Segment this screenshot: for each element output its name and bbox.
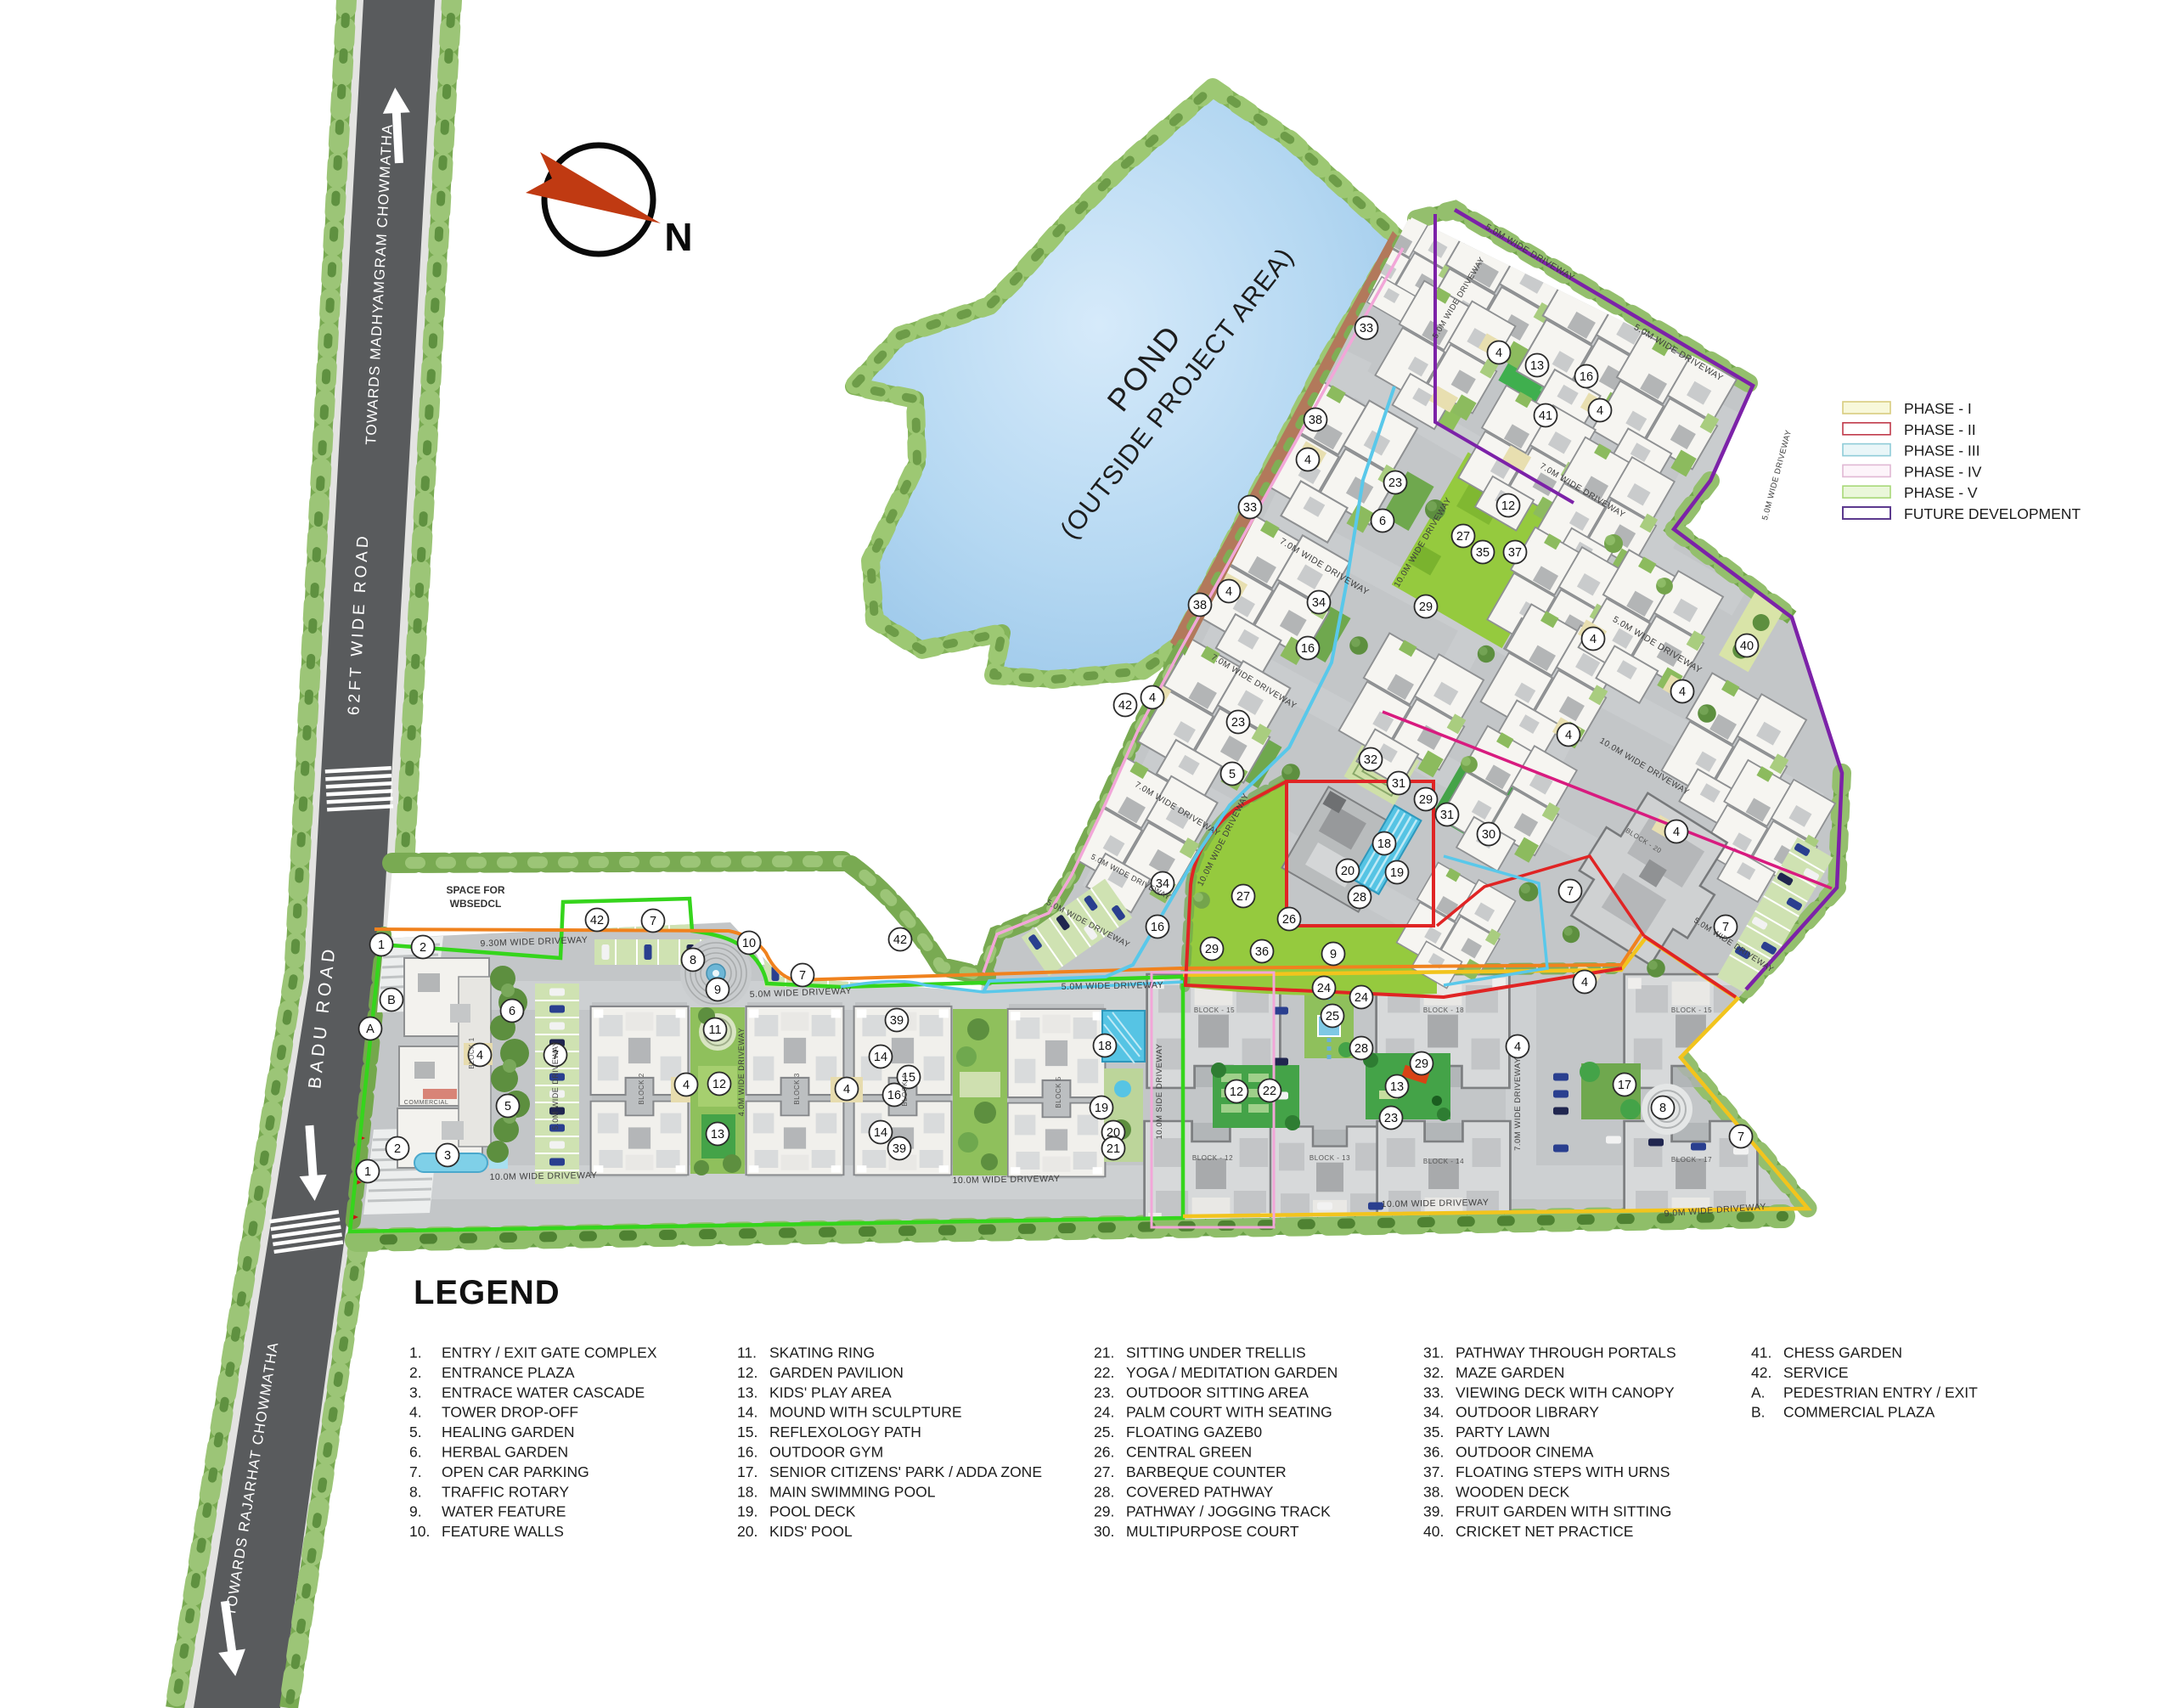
svg-text:31: 31 bbox=[1392, 777, 1405, 791]
svg-text:A: A bbox=[366, 1023, 375, 1036]
svg-text:TRAFFIC ROTARY: TRAFFIC ROTARY bbox=[442, 1483, 569, 1500]
svg-text:4: 4 bbox=[1304, 454, 1311, 467]
svg-text:4: 4 bbox=[1581, 976, 1588, 989]
svg-text:ENTRANCE PLAZA: ENTRANCE PLAZA bbox=[442, 1364, 575, 1381]
svg-text:10.0M SIDE DRIVEWAY: 10.0M SIDE DRIVEWAY bbox=[1155, 1043, 1164, 1139]
svg-text:COVERED PATHWAY: COVERED PATHWAY bbox=[1126, 1483, 1274, 1500]
svg-text:OUTDOOR SITTING AREA: OUTDOOR SITTING AREA bbox=[1126, 1384, 1309, 1401]
svg-text:28.: 28. bbox=[1094, 1483, 1114, 1500]
svg-text:1: 1 bbox=[378, 939, 385, 952]
svg-text:BLOCK 2: BLOCK 2 bbox=[638, 1073, 645, 1104]
svg-text:24: 24 bbox=[1317, 982, 1331, 995]
svg-text:34: 34 bbox=[1312, 596, 1326, 610]
svg-text:19: 19 bbox=[1390, 866, 1404, 880]
svg-text:KIDS' PLAY AREA: KIDS' PLAY AREA bbox=[769, 1384, 892, 1401]
svg-text:KIDS' POOL: KIDS' POOL bbox=[769, 1523, 853, 1540]
svg-text:12: 12 bbox=[1230, 1085, 1243, 1099]
svg-text:10.: 10. bbox=[409, 1523, 430, 1540]
svg-text:41.: 41. bbox=[1751, 1344, 1771, 1361]
svg-text:4: 4 bbox=[1149, 691, 1156, 705]
svg-text:BLOCK - 15: BLOCK - 15 bbox=[1671, 1006, 1712, 1014]
svg-text:18.: 18. bbox=[737, 1483, 758, 1500]
svg-text:35.: 35. bbox=[1423, 1423, 1444, 1440]
svg-text:4: 4 bbox=[1565, 729, 1572, 742]
svg-text:BLOCK 3: BLOCK 3 bbox=[793, 1073, 801, 1104]
svg-text:25.: 25. bbox=[1094, 1423, 1114, 1440]
svg-text:12: 12 bbox=[712, 1078, 726, 1091]
svg-text:4.0M WIDE DRIVEWAY: 4.0M WIDE DRIVEWAY bbox=[737, 1028, 746, 1117]
svg-text:10.0M WIDE DRIVEWAY: 10.0M WIDE DRIVEWAY bbox=[1381, 1198, 1489, 1209]
svg-text:4: 4 bbox=[476, 1049, 483, 1063]
svg-text:CENTRAL GREEN: CENTRAL GREEN bbox=[1126, 1444, 1252, 1461]
svg-text:COMMERCIAL: COMMERCIAL bbox=[404, 1100, 448, 1106]
svg-text:BARBEQUE COUNTER: BARBEQUE COUNTER bbox=[1126, 1463, 1287, 1480]
svg-text:WOODEN DECK: WOODEN DECK bbox=[1456, 1483, 1570, 1500]
svg-text:20: 20 bbox=[1107, 1126, 1120, 1140]
svg-text:BLOCK 5: BLOCK 5 bbox=[1055, 1076, 1062, 1108]
svg-text:33: 33 bbox=[1243, 501, 1257, 515]
svg-text:5.: 5. bbox=[409, 1423, 422, 1440]
svg-text:HERBAL GARDEN: HERBAL GARDEN bbox=[442, 1444, 568, 1461]
svg-text:14: 14 bbox=[874, 1126, 887, 1140]
svg-text:29.: 29. bbox=[1094, 1503, 1114, 1520]
svg-text:2: 2 bbox=[394, 1142, 401, 1156]
svg-text:ENTRACE WATER CASCADE: ENTRACE WATER CASCADE bbox=[442, 1384, 645, 1401]
svg-text:12.: 12. bbox=[737, 1364, 758, 1381]
svg-text:4: 4 bbox=[683, 1079, 690, 1092]
svg-text:17: 17 bbox=[1618, 1079, 1631, 1092]
svg-text:10.0M WIDE DRIVEWAY: 10.0M WIDE DRIVEWAY bbox=[952, 1174, 1060, 1186]
svg-text:21: 21 bbox=[1107, 1142, 1120, 1156]
svg-text:B.: B. bbox=[1751, 1404, 1766, 1421]
svg-text:19.: 19. bbox=[737, 1503, 758, 1520]
svg-text:26.: 26. bbox=[1094, 1444, 1114, 1461]
svg-text:16: 16 bbox=[1151, 921, 1164, 934]
svg-text:2: 2 bbox=[420, 941, 426, 955]
svg-text:16.: 16. bbox=[737, 1444, 758, 1461]
svg-text:9: 9 bbox=[1330, 948, 1337, 961]
svg-text:37: 37 bbox=[1508, 546, 1522, 560]
svg-text:32: 32 bbox=[1364, 753, 1377, 767]
svg-text:18: 18 bbox=[1098, 1040, 1112, 1053]
svg-text:4: 4 bbox=[1590, 633, 1597, 646]
svg-text:38.: 38. bbox=[1423, 1483, 1444, 1500]
svg-text:BLOCK 4: BLOCK 4 bbox=[901, 1074, 909, 1106]
svg-text:BLOCK - 14: BLOCK - 14 bbox=[1423, 1158, 1464, 1165]
svg-text:36.: 36. bbox=[1423, 1444, 1444, 1461]
svg-text:4: 4 bbox=[1673, 826, 1680, 839]
svg-text:33.: 33. bbox=[1423, 1384, 1444, 1401]
svg-text:ENTRY / EXIT GATE COMPLEX: ENTRY / EXIT GATE COMPLEX bbox=[442, 1344, 657, 1361]
svg-text:16: 16 bbox=[887, 1089, 901, 1102]
svg-text:9.: 9. bbox=[409, 1503, 422, 1520]
svg-text:38: 38 bbox=[1193, 599, 1207, 612]
svg-text:27: 27 bbox=[1456, 530, 1470, 544]
svg-text:CHESS GARDEN: CHESS GARDEN bbox=[1783, 1344, 1902, 1361]
svg-text:OPEN CAR PARKING: OPEN CAR PARKING bbox=[442, 1463, 589, 1480]
svg-text:SITTING UNDER TRELLIS: SITTING UNDER TRELLIS bbox=[1126, 1344, 1306, 1361]
svg-text:FEATURE WALLS: FEATURE WALLS bbox=[442, 1523, 564, 1540]
svg-text:4: 4 bbox=[1679, 685, 1686, 699]
svg-text:34.: 34. bbox=[1423, 1404, 1444, 1421]
svg-text:9: 9 bbox=[714, 984, 721, 997]
svg-text:PHASE - V: PHASE - V bbox=[1904, 484, 1978, 501]
svg-text:FLOATING GAZEB0: FLOATING GAZEB0 bbox=[1126, 1423, 1262, 1440]
svg-text:CRICKET NET PRACTICE: CRICKET NET PRACTICE bbox=[1456, 1523, 1633, 1540]
svg-text:39: 39 bbox=[893, 1142, 906, 1156]
svg-text:28: 28 bbox=[1353, 891, 1366, 905]
svg-text:7: 7 bbox=[799, 969, 806, 983]
svg-text:7: 7 bbox=[1738, 1130, 1744, 1144]
svg-text:4: 4 bbox=[1225, 585, 1232, 599]
svg-text:A.: A. bbox=[1751, 1384, 1766, 1401]
svg-text:2.: 2. bbox=[409, 1364, 422, 1381]
svg-text:32.: 32. bbox=[1423, 1364, 1444, 1381]
svg-text:23: 23 bbox=[1231, 716, 1245, 730]
svg-text:7: 7 bbox=[1567, 885, 1574, 899]
svg-text:3: 3 bbox=[444, 1149, 451, 1163]
svg-text:WBSEDCL: WBSEDCL bbox=[450, 898, 502, 910]
svg-text:4: 4 bbox=[1514, 1040, 1521, 1054]
svg-text:11: 11 bbox=[708, 1023, 721, 1037]
svg-text:36: 36 bbox=[1255, 945, 1269, 959]
svg-text:20.: 20. bbox=[737, 1523, 758, 1540]
svg-text:1: 1 bbox=[364, 1165, 371, 1179]
svg-text:39.: 39. bbox=[1423, 1503, 1444, 1520]
svg-text:REFLEXOLOGY PATH: REFLEXOLOGY PATH bbox=[769, 1423, 921, 1440]
svg-text:42: 42 bbox=[893, 933, 907, 947]
svg-text:PHASE - IV: PHASE - IV bbox=[1904, 463, 1982, 480]
svg-text:30: 30 bbox=[1482, 828, 1495, 842]
svg-text:39: 39 bbox=[890, 1014, 904, 1028]
svg-text:16: 16 bbox=[1580, 370, 1593, 384]
svg-text:BLOCK - 12: BLOCK - 12 bbox=[1192, 1154, 1233, 1162]
svg-text:PATHWAY THROUGH PORTALS: PATHWAY THROUGH PORTALS bbox=[1456, 1344, 1676, 1361]
svg-text:20: 20 bbox=[1341, 865, 1355, 878]
svg-text:17.: 17. bbox=[737, 1463, 758, 1480]
svg-text:MULTIPURPOSE COURT: MULTIPURPOSE COURT bbox=[1126, 1523, 1299, 1540]
svg-text:14.: 14. bbox=[737, 1404, 758, 1421]
svg-text:27.: 27. bbox=[1094, 1463, 1114, 1480]
svg-text:42: 42 bbox=[590, 914, 604, 927]
svg-text:23.: 23. bbox=[1094, 1384, 1114, 1401]
svg-text:SERVICE: SERVICE bbox=[1783, 1364, 1849, 1381]
svg-text:14: 14 bbox=[874, 1051, 887, 1064]
svg-text:22.: 22. bbox=[1094, 1364, 1114, 1381]
svg-text:8.: 8. bbox=[409, 1483, 422, 1500]
svg-text:BLOCK - 17: BLOCK - 17 bbox=[1671, 1156, 1712, 1164]
svg-text:OUTDOOR CINEMA: OUTDOOR CINEMA bbox=[1456, 1444, 1594, 1461]
svg-text:7.: 7. bbox=[409, 1463, 422, 1480]
svg-text:SKATING RING: SKATING RING bbox=[769, 1344, 875, 1361]
svg-text:7.0M WIDE DRIVEWAY: 7.0M WIDE DRIVEWAY bbox=[1513, 1057, 1523, 1151]
svg-text:B: B bbox=[387, 994, 396, 1007]
svg-text:11.: 11. bbox=[737, 1344, 757, 1361]
svg-text:8: 8 bbox=[690, 954, 696, 967]
svg-text:29: 29 bbox=[1415, 1057, 1428, 1071]
svg-text:OUTDOOR GYM: OUTDOOR GYM bbox=[769, 1444, 883, 1461]
svg-text:26: 26 bbox=[1282, 913, 1296, 927]
svg-text:23: 23 bbox=[1388, 476, 1402, 490]
svg-text:31.: 31. bbox=[1423, 1344, 1444, 1361]
svg-text:VIEWING DECK WITH CANOPY: VIEWING DECK WITH CANOPY bbox=[1456, 1384, 1675, 1401]
svg-text:4: 4 bbox=[843, 1083, 850, 1096]
svg-text:33: 33 bbox=[1360, 322, 1373, 335]
svg-text:PALM COURT WITH SEATING: PALM COURT WITH SEATING bbox=[1126, 1404, 1332, 1421]
svg-text:1.: 1. bbox=[409, 1344, 422, 1361]
svg-text:7: 7 bbox=[650, 915, 656, 928]
svg-text:WATER FEATURE: WATER FEATURE bbox=[442, 1503, 566, 1520]
svg-text:BLOCK - 15: BLOCK - 15 bbox=[1194, 1006, 1235, 1014]
svg-text:MOUND WITH SCULPTURE: MOUND WITH SCULPTURE bbox=[769, 1404, 962, 1421]
svg-text:PHASE - III: PHASE - III bbox=[1904, 443, 1980, 459]
svg-text:TOWER DROP-OFF: TOWER DROP-OFF bbox=[442, 1404, 578, 1421]
svg-text:YOGA / MEDITATION GARDEN: YOGA / MEDITATION GARDEN bbox=[1126, 1364, 1338, 1381]
svg-text:FUTURE DEVELOPMENT: FUTURE DEVELOPMENT bbox=[1904, 505, 2081, 522]
svg-text:23: 23 bbox=[1384, 1112, 1398, 1125]
svg-text:HEALING GARDEN: HEALING GARDEN bbox=[442, 1423, 575, 1440]
svg-text:PHASE - II: PHASE - II bbox=[1904, 421, 1976, 438]
svg-text:POOL DECK: POOL DECK bbox=[769, 1503, 856, 1520]
svg-text:13.: 13. bbox=[737, 1384, 758, 1401]
svg-text:41: 41 bbox=[1539, 409, 1552, 423]
svg-text:27: 27 bbox=[1236, 890, 1250, 904]
svg-text:13: 13 bbox=[1530, 359, 1544, 373]
svg-text:OUTDOOR LIBRARY: OUTDOOR LIBRARY bbox=[1456, 1404, 1599, 1421]
svg-text:42: 42 bbox=[1118, 699, 1132, 713]
svg-text:18: 18 bbox=[1377, 837, 1391, 851]
svg-text:6: 6 bbox=[1379, 515, 1386, 528]
svg-text:MAIN SWIMMING POOL: MAIN SWIMMING POOL bbox=[769, 1483, 936, 1500]
svg-text:40.: 40. bbox=[1423, 1523, 1444, 1540]
svg-text:PATHWAY / JOGGING TRACK: PATHWAY / JOGGING TRACK bbox=[1126, 1503, 1331, 1520]
svg-text:MAZE GARDEN: MAZE GARDEN bbox=[1456, 1364, 1564, 1381]
svg-text:COMMERCIAL PLAZA: COMMERCIAL PLAZA bbox=[1783, 1404, 1935, 1421]
svg-text:PHASE - I: PHASE - I bbox=[1904, 400, 1972, 417]
svg-text:16: 16 bbox=[1301, 642, 1315, 656]
svg-text:3.: 3. bbox=[409, 1384, 422, 1401]
svg-text:31: 31 bbox=[1440, 809, 1454, 822]
svg-text:SPACE FOR: SPACE FOR bbox=[446, 884, 504, 896]
svg-text:35: 35 bbox=[1476, 546, 1490, 560]
svg-text:13: 13 bbox=[711, 1128, 724, 1141]
svg-text:SENIOR CITIZENS' PARK / ADDA Z: SENIOR CITIZENS' PARK / ADDA ZONE bbox=[769, 1463, 1042, 1480]
svg-text:PARTY LAWN: PARTY LAWN bbox=[1456, 1423, 1550, 1440]
svg-text:40: 40 bbox=[1740, 640, 1754, 653]
svg-text:FRUIT GARDEN WITH SITTING: FRUIT GARDEN WITH SITTING bbox=[1456, 1503, 1671, 1520]
svg-text:8: 8 bbox=[1659, 1102, 1666, 1115]
svg-text:29: 29 bbox=[1419, 793, 1433, 807]
svg-text:37.: 37. bbox=[1423, 1463, 1444, 1480]
svg-text:29: 29 bbox=[1205, 943, 1219, 956]
svg-text:BLOCK - 13: BLOCK - 13 bbox=[1309, 1154, 1350, 1162]
svg-text:24: 24 bbox=[1355, 991, 1368, 1005]
svg-text:42.: 42. bbox=[1751, 1364, 1771, 1381]
svg-text:38: 38 bbox=[1309, 414, 1322, 427]
svg-text:5: 5 bbox=[1229, 768, 1236, 781]
svg-text:19: 19 bbox=[1095, 1102, 1108, 1115]
svg-text:28: 28 bbox=[1355, 1042, 1368, 1056]
svg-text:29: 29 bbox=[1419, 600, 1433, 614]
svg-text:24.: 24. bbox=[1094, 1404, 1114, 1421]
svg-text:5.0M WIDE DRIVEWAY: 5.0M WIDE DRIVEWAY bbox=[551, 1041, 560, 1130]
svg-text:4: 4 bbox=[1495, 347, 1502, 360]
svg-text:LEGEND: LEGEND bbox=[414, 1274, 560, 1311]
svg-text:12: 12 bbox=[1501, 499, 1515, 513]
svg-text:PEDESTRIAN ENTRY / EXIT: PEDESTRIAN ENTRY / EXIT bbox=[1783, 1384, 1978, 1401]
svg-text:FLOATING STEPS WITH URNS: FLOATING STEPS WITH URNS bbox=[1456, 1463, 1670, 1480]
svg-text:13: 13 bbox=[1390, 1080, 1404, 1094]
svg-text:GARDEN PAVILION: GARDEN PAVILION bbox=[769, 1364, 904, 1381]
svg-text:25: 25 bbox=[1326, 1010, 1339, 1023]
svg-text:N: N bbox=[664, 215, 692, 259]
svg-text:10.0M WIDE DRIVEWAY: 10.0M WIDE DRIVEWAY bbox=[489, 1170, 597, 1182]
svg-text:10: 10 bbox=[742, 937, 756, 950]
svg-text:6: 6 bbox=[509, 1005, 515, 1018]
svg-text:15.: 15. bbox=[737, 1423, 758, 1440]
svg-text:BLOCK - 18: BLOCK - 18 bbox=[1423, 1006, 1464, 1014]
svg-text:21.: 21. bbox=[1094, 1344, 1114, 1361]
svg-text:22: 22 bbox=[1263, 1085, 1276, 1098]
svg-text:5: 5 bbox=[504, 1100, 511, 1113]
svg-text:6.: 6. bbox=[409, 1444, 422, 1461]
svg-text:4.: 4. bbox=[409, 1404, 422, 1421]
svg-text:5.0M WIDE DRIVEWAY: 5.0M WIDE DRIVEWAY bbox=[1062, 980, 1164, 992]
svg-text:4: 4 bbox=[1597, 404, 1603, 418]
svg-text:30.: 30. bbox=[1094, 1523, 1114, 1540]
svg-text:BLOCK 1: BLOCK 1 bbox=[468, 1037, 476, 1068]
